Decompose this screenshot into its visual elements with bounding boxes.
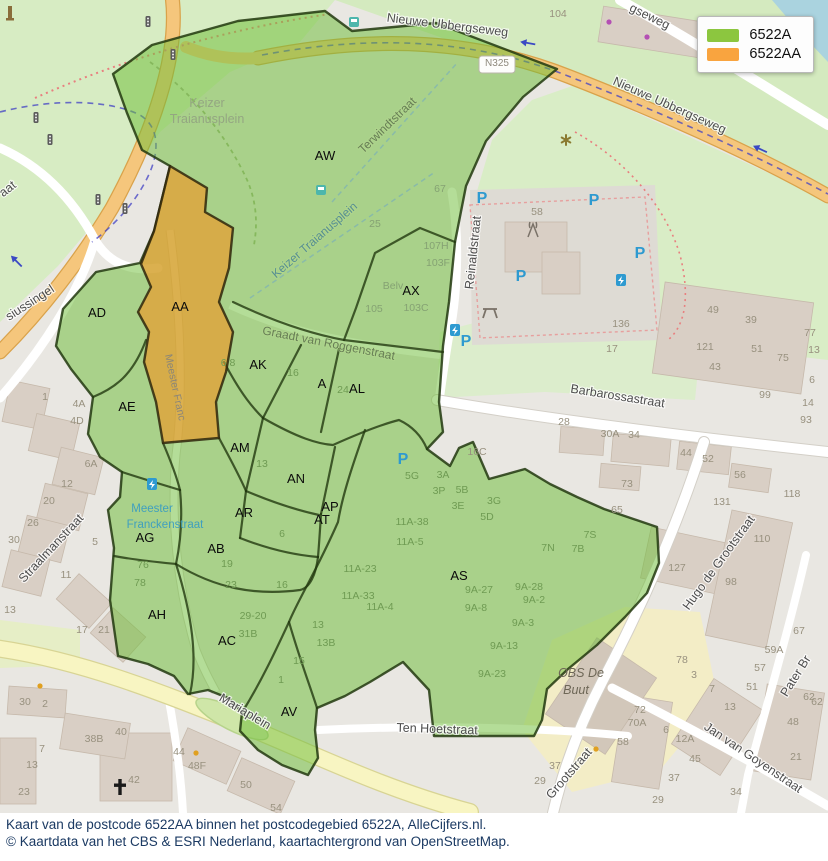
poi-label: Traianusplein xyxy=(170,112,245,126)
house-number: 17 xyxy=(606,343,618,355)
house-number: 12A xyxy=(676,733,695,745)
poi-label: N325 xyxy=(485,58,509,69)
house-number: 49 xyxy=(707,304,719,316)
house-number: 13B xyxy=(317,637,336,649)
house-number: 21 xyxy=(98,624,110,636)
region-code-label: AK xyxy=(249,357,267,372)
bus-stop-icon xyxy=(316,185,326,195)
legend-label: 6522A xyxy=(749,27,791,43)
traffic-light-icon xyxy=(123,203,128,214)
poi-label: Keizer xyxy=(189,96,224,110)
house-number: 5G xyxy=(405,470,419,482)
house-number: 7B xyxy=(572,543,585,555)
house-number: 57 xyxy=(754,662,766,674)
house-number: 1 xyxy=(278,674,284,686)
house-number: 6A xyxy=(85,458,98,470)
house-number: 11A-23 xyxy=(343,563,376,575)
ev-charger-icon xyxy=(147,478,157,490)
region-code-label: AH xyxy=(148,607,166,622)
house-number: 34 xyxy=(730,786,742,798)
legend-swatch-green xyxy=(707,29,739,42)
poi-label: OBS De xyxy=(558,666,604,680)
house-number: 6 xyxy=(663,724,669,736)
house-number: 13 xyxy=(808,344,820,356)
house-number: 13 xyxy=(312,619,324,631)
house-number: 37 xyxy=(668,772,680,784)
house-number: 78 xyxy=(134,577,146,589)
house-number: 59A xyxy=(765,644,784,656)
house-number: 98 xyxy=(725,576,737,588)
house-number: 19 xyxy=(221,558,233,570)
house-number: 39 xyxy=(745,314,757,326)
house-number: 9A-23 xyxy=(478,668,506,680)
house-number: 54 xyxy=(270,802,282,813)
poi-dot-icon xyxy=(37,683,42,688)
house-number: 5D xyxy=(480,511,494,523)
region-code-label: AR xyxy=(235,505,253,520)
house-number: 11A-38 xyxy=(395,516,428,528)
postcode-map-page: { "legend": { "items": [ {"label": "6522… xyxy=(0,0,828,861)
house-number: 7N xyxy=(541,542,554,554)
house-number: 13 xyxy=(26,759,38,771)
traffic-light-icon xyxy=(171,49,176,60)
region-code-label: AE xyxy=(118,399,136,414)
street-name-label: Meester xyxy=(131,503,173,515)
house-number: 38B xyxy=(85,733,104,745)
house-number: 7S xyxy=(584,529,597,541)
house-number: 6 xyxy=(809,374,815,386)
house-number: 70A xyxy=(628,717,647,729)
legend-row-6522AA: 6522AA xyxy=(707,46,801,62)
house-number: 37 xyxy=(549,760,561,772)
house-number: 48 xyxy=(787,716,799,728)
traffic-light-icon xyxy=(48,134,53,145)
house-number: 40 xyxy=(115,726,127,738)
house-number: 13 xyxy=(4,604,16,616)
house-number: 72 xyxy=(634,704,646,716)
region-code-label: AT xyxy=(314,512,330,527)
house-number: 4D xyxy=(70,415,84,427)
house-number: 136 xyxy=(612,318,630,330)
house-number: 99 xyxy=(759,389,771,401)
region-code-label: AV xyxy=(281,704,298,719)
house-number: 2 xyxy=(42,698,48,710)
caption-line-2: © Kaartdata van het CBS & ESRI Nederland… xyxy=(6,833,822,850)
house-number: 9A-27 xyxy=(465,584,493,596)
region-code-label: A xyxy=(318,376,327,391)
house-number: 127 xyxy=(668,562,686,574)
house-number: 26 xyxy=(27,517,39,529)
region-code-label: AX xyxy=(402,283,420,298)
house-number: 65 xyxy=(611,504,623,516)
house-number: 30 xyxy=(8,534,20,546)
region-code-label: AS xyxy=(450,568,468,583)
house-number: 29-20 xyxy=(240,610,267,622)
house-number: 23 xyxy=(225,579,237,591)
tree-icon xyxy=(606,19,611,24)
parking-icon xyxy=(477,190,488,207)
house-number: 56 xyxy=(734,469,746,481)
house-number: 78 xyxy=(676,654,688,666)
house-number: 7 xyxy=(39,743,45,755)
house-number: 43 xyxy=(709,361,721,373)
ev-charger-icon xyxy=(616,274,626,286)
house-number: 118 xyxy=(784,488,801,500)
house-number: 29 xyxy=(652,794,664,806)
house-number: 104 xyxy=(549,8,567,20)
house-number: 6 xyxy=(279,528,285,540)
house-number: 24 xyxy=(337,384,349,396)
house-number: 31B xyxy=(239,628,258,640)
house-number: 9A-3 xyxy=(512,617,534,629)
house-number: 3 xyxy=(691,669,697,681)
house-number: 23 xyxy=(18,786,30,798)
house-number: 5B xyxy=(456,484,469,496)
tree-icon xyxy=(644,34,649,39)
house-number: 4A xyxy=(73,398,86,410)
region-code-label: AC xyxy=(218,633,236,648)
parking-icon xyxy=(635,245,646,262)
house-number: 16 xyxy=(276,579,288,591)
house-number: 3A xyxy=(437,469,450,481)
house-number: 75 xyxy=(777,352,789,364)
house-number: 52 xyxy=(702,453,714,465)
house-number: 44 xyxy=(680,447,692,459)
house-number: 11A-5 xyxy=(396,536,423,548)
house-number: 13 xyxy=(724,701,736,713)
house-number: 9A-8 xyxy=(465,602,487,614)
traffic-light-icon xyxy=(34,112,39,123)
house-number: 25 xyxy=(369,218,381,230)
house-number: 107H xyxy=(423,240,448,252)
house-number: 29 xyxy=(534,775,546,787)
house-number: 30A xyxy=(601,428,620,440)
region-code-label: AG xyxy=(136,530,155,545)
house-number: 1 xyxy=(42,391,48,403)
region-code-label: AA xyxy=(171,299,189,314)
poi-dot-icon xyxy=(593,746,598,751)
parking-icon xyxy=(398,451,409,468)
house-number: 73 xyxy=(621,478,633,490)
house-number: 121 xyxy=(696,341,714,353)
house-number: 76 xyxy=(137,559,149,571)
house-number: 15 xyxy=(293,655,305,667)
house-number: 105 xyxy=(365,303,383,315)
house-number: 30 xyxy=(19,696,31,708)
house-number: 5 xyxy=(92,536,98,548)
region-code-label: AB xyxy=(207,541,224,556)
region-code-label: AN xyxy=(287,471,305,486)
house-number: 21 xyxy=(790,751,802,763)
parking-icon xyxy=(461,333,472,350)
house-number: 44 xyxy=(173,746,185,758)
house-number: 20 xyxy=(43,495,55,507)
region-code-label: AM xyxy=(230,440,250,455)
house-number: 14 xyxy=(802,397,814,409)
house-number: 62 xyxy=(811,696,823,708)
region-code-label: AW xyxy=(315,148,336,163)
house-number: 9A-13 xyxy=(490,640,518,652)
house-number: 11 xyxy=(61,569,72,581)
street-name-label: Ten Hoetstraat xyxy=(396,721,478,738)
traffic-light-icon xyxy=(146,16,151,27)
house-number: 3E xyxy=(452,500,465,512)
house-number: 67 xyxy=(793,625,805,637)
poi-dot-icon xyxy=(193,750,198,755)
legend-row-6522A: 6522A xyxy=(707,27,801,43)
legend-swatch-orange xyxy=(707,48,739,61)
house-number: 6 8 xyxy=(221,357,236,369)
house-number: 77 xyxy=(804,327,816,339)
house-number: 16 xyxy=(287,367,299,379)
map-caption: Kaart van de postcode 6522AA binnen het … xyxy=(0,813,828,861)
house-number: 48F xyxy=(188,760,206,772)
house-number: 103F xyxy=(426,257,450,269)
house-number: 42 xyxy=(128,774,140,786)
house-number: 110 xyxy=(754,533,771,545)
house-number: 3P xyxy=(433,485,446,497)
house-number: 9A-2 xyxy=(523,594,545,606)
house-number: 103C xyxy=(403,302,429,314)
parking-icon xyxy=(589,192,600,209)
house-number: 16C xyxy=(467,446,487,458)
house-number: 17 xyxy=(76,624,88,636)
bus-stop-icon xyxy=(349,17,359,27)
house-number: 3G xyxy=(487,495,501,507)
house-number: 58 xyxy=(531,206,543,218)
house-number: 58 xyxy=(617,736,629,748)
house-number: 50 xyxy=(240,779,252,791)
ev-charger-icon xyxy=(450,324,460,336)
poi-label: Buut xyxy=(563,683,589,697)
house-number: 28 xyxy=(558,416,570,428)
house-number: 12 xyxy=(61,478,73,490)
region-code-label: AL xyxy=(349,381,365,396)
house-number: 51 xyxy=(751,343,763,355)
house-number: 67 xyxy=(434,183,446,195)
poi-label: Belv xyxy=(383,280,404,292)
caption-line-1: Kaart van de postcode 6522AA binnen het … xyxy=(6,816,822,833)
map-canvas[interactable]: P xyxy=(0,0,828,813)
house-number: 13 xyxy=(256,458,268,470)
legend-label: 6522AA xyxy=(749,46,801,62)
map-legend: 6522A 6522AA xyxy=(697,16,814,73)
traffic-light-icon xyxy=(96,194,101,205)
house-number: 11A-4 xyxy=(366,601,393,613)
house-number: 45 xyxy=(689,753,701,765)
house-number: 131 xyxy=(713,496,731,508)
region-code-label: AD xyxy=(88,305,106,320)
house-number: 34 xyxy=(628,429,640,441)
house-number: 9A-28 xyxy=(515,581,543,593)
house-number: 7 xyxy=(709,683,715,695)
house-number: 93 xyxy=(800,414,812,426)
house-number: 51 xyxy=(746,681,758,693)
openstreetmap-base[interactable]: P xyxy=(0,0,828,813)
parking-icon xyxy=(516,268,527,285)
